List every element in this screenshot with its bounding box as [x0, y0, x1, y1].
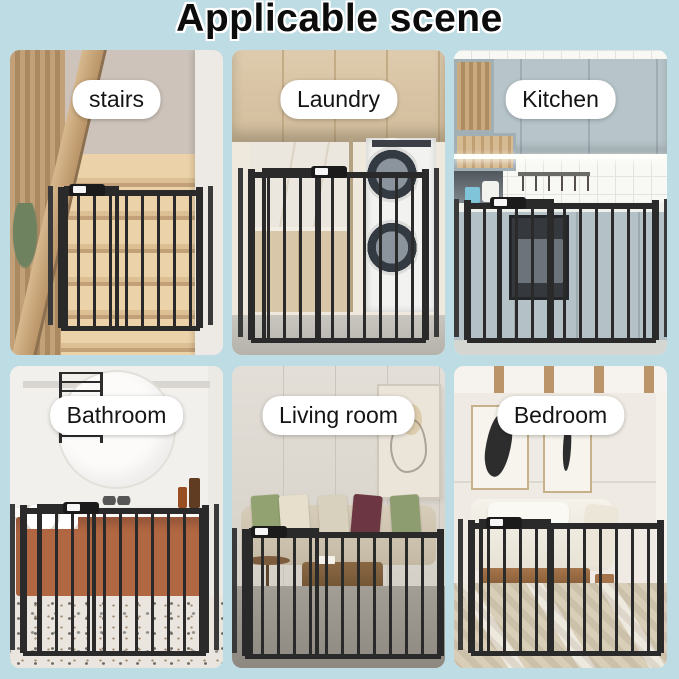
soap-bottle	[189, 478, 200, 508]
pillow	[350, 494, 383, 537]
plant	[10, 203, 40, 276]
scene-label-living-room: Living room	[262, 396, 415, 435]
scene-label-kitchen: Kitchen	[505, 80, 616, 119]
gate-door	[497, 199, 554, 338]
safety-gate	[471, 523, 661, 656]
safety-gate	[23, 508, 206, 656]
scene-label-stairs: stairs	[72, 80, 161, 119]
utensil-rail	[518, 172, 590, 176]
under-cabinet-light	[454, 154, 667, 159]
scene-panel-living-room: Living room	[232, 366, 445, 668]
side-wall	[208, 366, 223, 602]
gate-latch	[486, 517, 522, 529]
safety-gate	[467, 203, 657, 343]
scene-label-laundry: Laundry	[280, 80, 397, 119]
gate-latch	[69, 184, 105, 196]
gate-door	[479, 519, 551, 651]
safety-gate	[251, 172, 426, 343]
soap-bottle	[178, 487, 187, 508]
scene-panel-bedroom: Bedroom	[454, 366, 667, 668]
scene-panel-kitchen: Kitchen	[454, 50, 667, 355]
gate-latch	[311, 166, 347, 178]
safety-gate	[61, 190, 199, 330]
gate-latch	[63, 502, 99, 514]
gate-door	[64, 186, 119, 325]
page-title: Applicable scene	[0, 0, 679, 41]
gate-latch	[251, 526, 287, 538]
scene-panel-bathroom: Bathroom	[10, 366, 223, 668]
scene-grid: stairs Laundry	[10, 50, 667, 668]
gate-door	[37, 504, 96, 651]
wall-taps	[102, 496, 132, 505]
scene-label-bedroom: Bedroom	[497, 396, 624, 435]
glass-cabinet	[454, 59, 494, 133]
safety-gate	[245, 532, 441, 659]
beamed-ceiling	[454, 366, 667, 393]
scene-panel-laundry: Laundry	[232, 50, 445, 355]
pillow	[390, 494, 422, 537]
glass-cabinet	[454, 133, 516, 171]
gate-door	[249, 528, 320, 654]
scene-label-bathroom: Bathroom	[50, 396, 184, 435]
pillow	[317, 494, 349, 537]
gate-latch	[490, 197, 526, 209]
scene-panel-stairs: stairs	[10, 50, 223, 355]
gate-door	[262, 168, 321, 338]
